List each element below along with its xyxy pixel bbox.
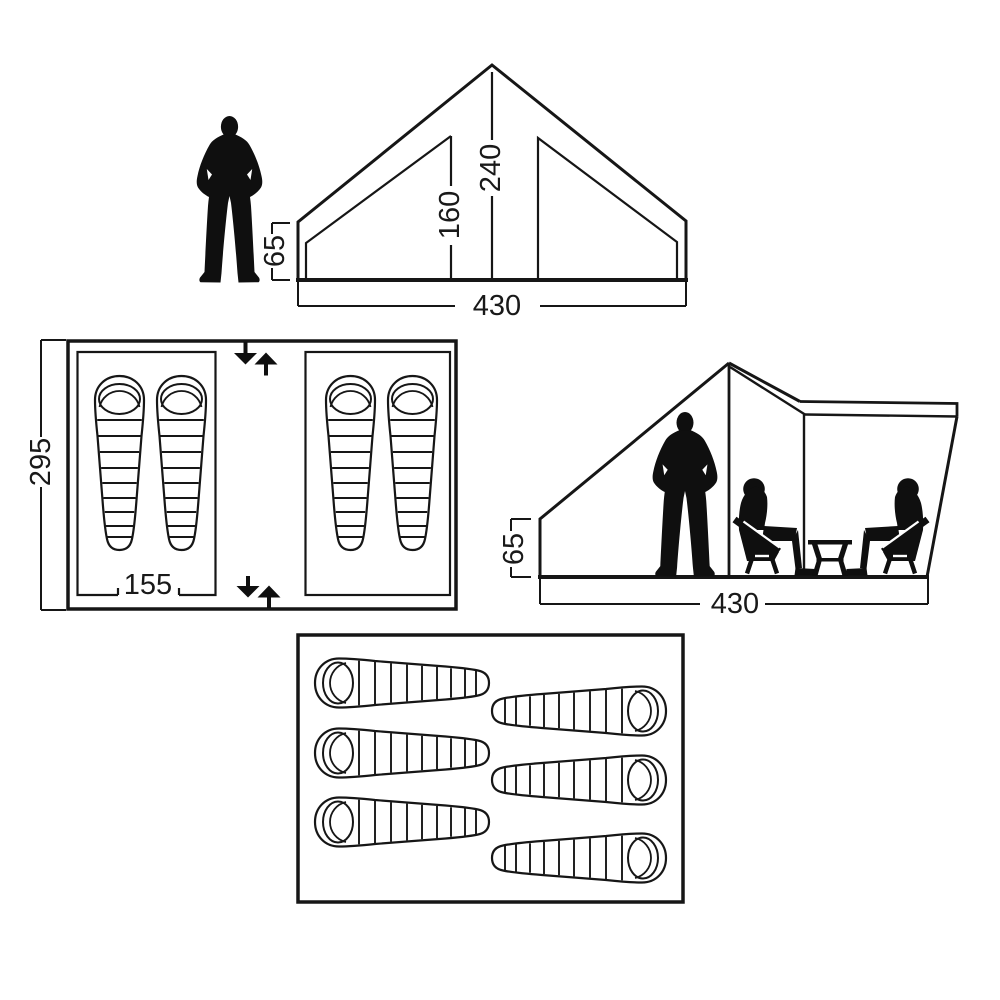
svg-text:240: 240 bbox=[475, 144, 507, 192]
svg-text:160: 160 bbox=[434, 191, 466, 239]
svg-text:430: 430 bbox=[473, 290, 521, 322]
svg-text:295: 295 bbox=[25, 438, 57, 486]
svg-text:155: 155 bbox=[124, 569, 172, 601]
svg-text:65: 65 bbox=[259, 235, 291, 267]
svg-text:65: 65 bbox=[498, 533, 530, 565]
svg-text:430: 430 bbox=[711, 588, 759, 620]
